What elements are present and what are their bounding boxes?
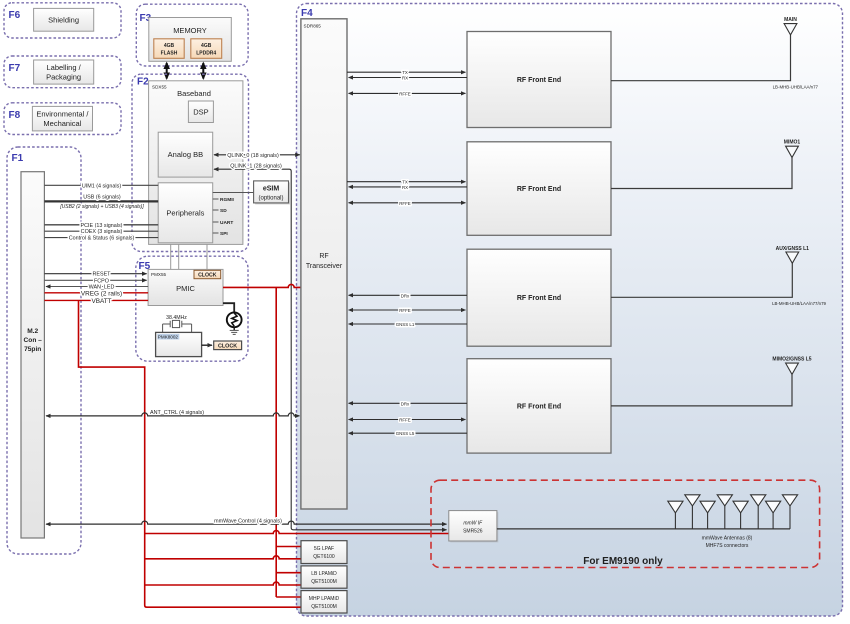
svg-text:UIM1 (4 signals): UIM1 (4 signals) (82, 183, 121, 189)
svg-text:F4: F4 (301, 8, 313, 19)
svg-text:ANT_CTRL (4 signals): ANT_CTRL (4 signals) (150, 410, 204, 416)
svg-text:LPDDR4: LPDDR4 (196, 50, 216, 56)
svg-text:QLINK_0 (18 signals): QLINK_0 (18 signals) (227, 153, 279, 159)
svg-text:PCIE (13 signals): PCIE (13 signals) (81, 223, 123, 229)
svg-text:5G LPAF: 5G LPAF (314, 546, 334, 552)
svg-text:SMR526: SMR526 (463, 529, 483, 535)
svg-text:DRx: DRx (401, 401, 410, 406)
svg-text:CLOCK: CLOCK (198, 273, 217, 279)
svg-text:QET5100M: QET5100M (311, 579, 337, 585)
svg-text:Mechanical: Mechanical (43, 119, 81, 128)
svg-text:RX: RX (402, 76, 408, 81)
svg-text:RF: RF (319, 253, 328, 260)
svg-text:75pin: 75pin (24, 346, 41, 353)
svg-text:MHP LPAMiD: MHP LPAMiD (309, 596, 340, 602)
svg-text:RFFE: RFFE (399, 201, 411, 206)
svg-text:RFFE: RFFE (399, 418, 411, 423)
svg-text:4GB: 4GB (164, 43, 175, 49)
svg-text:PMX55: PMX55 (151, 272, 167, 277)
svg-text:PMIC: PMIC (176, 284, 195, 293)
svg-text:QET5100M: QET5100M (311, 604, 337, 610)
svg-text:UART: UART (220, 220, 233, 226)
svg-text:CLOCK: CLOCK (218, 344, 237, 350)
svg-text:F6: F6 (9, 10, 21, 21)
svg-text:DSP: DSP (193, 108, 208, 117)
svg-text:RGMII: RGMII (220, 197, 235, 203)
svg-text:F1: F1 (12, 153, 24, 164)
svg-text:MAIN: MAIN (784, 17, 797, 23)
svg-text:USB (6 signals): USB (6 signals) (83, 195, 121, 201)
svg-text:QLINK_1 (28 signals): QLINK_1 (28 signals) (230, 164, 282, 170)
svg-text:Peripherals: Peripherals (166, 209, 204, 218)
svg-text:VBATT: VBATT (91, 298, 111, 305)
svg-text:SDR865: SDR865 (304, 24, 322, 29)
svg-text:Shielding: Shielding (48, 16, 79, 25)
svg-text:F7: F7 (9, 63, 21, 74)
svg-text:mmWave Control (4 signals): mmWave Control (4 signals) (214, 518, 282, 524)
svg-text:(optional): (optional) (258, 195, 283, 201)
svg-text:RESET: RESET (93, 272, 112, 278)
svg-text:Packaging: Packaging (46, 72, 81, 81)
svg-text:TX: TX (402, 180, 408, 185)
svg-text:MEMORY: MEMORY (173, 26, 207, 35)
svg-text:F8: F8 (9, 110, 21, 121)
svg-text:LB-MHB-UHB/LAA/n77/n79: LB-MHB-UHB/LAA/n77/n79 (772, 301, 826, 306)
svg-text:DRx: DRx (401, 293, 410, 298)
svg-text:SDX55: SDX55 (152, 85, 167, 90)
svg-text:Con –: Con – (24, 337, 43, 344)
svg-text:MIMO1: MIMO1 (784, 140, 801, 146)
svg-text:RF Front End: RF Front End (517, 295, 561, 302)
svg-text:RFFE: RFFE (399, 91, 411, 96)
svg-text:RF Front End: RF Front End (517, 186, 561, 193)
svg-text:FLASH: FLASH (161, 50, 178, 56)
svg-text:VREG (2 rails): VREG (2 rails) (81, 290, 122, 297)
svg-text:QET6100: QET6100 (313, 554, 335, 560)
svg-text:M.2: M.2 (27, 328, 38, 335)
svg-text:PMK8002: PMK8002 (158, 335, 179, 340)
svg-text:RF Front End: RF Front End (517, 404, 561, 411)
svg-text:LB LPAMiD: LB LPAMiD (311, 571, 337, 577)
svg-text:Environmental /: Environmental / (36, 109, 89, 118)
svg-text:TX: TX (402, 70, 408, 75)
svg-text:mmWave Antennas (8): mmWave Antennas (8) (702, 536, 753, 542)
svg-text:For EM9190 only: For EM9190 only (583, 556, 663, 567)
svg-text:eSIM: eSIM (263, 186, 280, 193)
svg-text:GNSS L1: GNSS L1 (396, 322, 415, 327)
svg-text:AUX/GNSS L1: AUX/GNSS L1 (776, 246, 810, 252)
svg-text:F2: F2 (137, 77, 149, 88)
svg-text:SPI: SPI (220, 231, 228, 237)
svg-text:4GB: 4GB (201, 43, 212, 49)
svg-text:Labelling /: Labelling / (46, 63, 81, 72)
svg-text:mmW IF: mmW IF (463, 521, 483, 527)
svg-text:SD: SD (220, 208, 227, 214)
svg-text:MIMO2/GNSS L5: MIMO2/GNSS L5 (772, 357, 811, 363)
svg-text:Control & Status (6 signals): Control & Status (6 signals) (69, 236, 135, 242)
svg-text:GNSS L5: GNSS L5 (396, 431, 415, 436)
svg-text:FCPO: FCPO (94, 278, 109, 284)
svg-text:COEX (3 signals): COEX (3 signals) (81, 229, 123, 235)
svg-text:[USB2 (2 signals) + USB3 (4 si: [USB2 (2 signals) + USB3 (4 signals)] (59, 204, 144, 210)
svg-text:LB-MHB-UHB/LAA/n77: LB-MHB-UHB/LAA/n77 (773, 85, 819, 90)
svg-text:Analog BB: Analog BB (168, 150, 203, 159)
svg-text:Transceiver: Transceiver (306, 263, 343, 270)
svg-text:RX: RX (402, 185, 408, 190)
svg-text:MHF7S connectors: MHF7S connectors (706, 543, 749, 549)
svg-text:RF Front End: RF Front End (517, 77, 561, 84)
svg-text:RFFE: RFFE (399, 308, 411, 313)
svg-text:Baseband: Baseband (177, 89, 211, 98)
